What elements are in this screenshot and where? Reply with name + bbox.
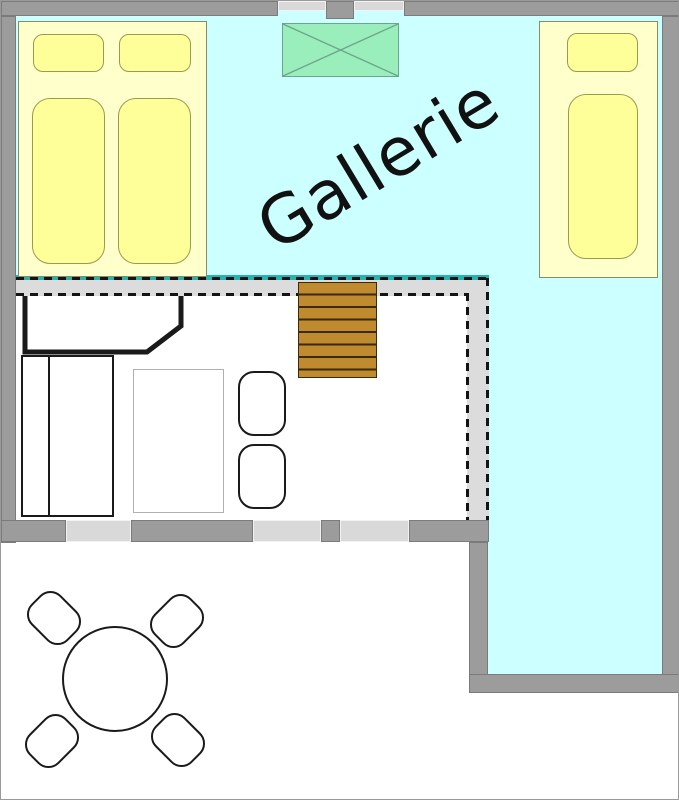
dining-table (133, 369, 224, 513)
gallery-edge-dashed-line-right (486, 278, 489, 520)
wall-bottom-segment-1 (1, 520, 66, 542)
pillow (119, 34, 191, 72)
window-bottom-2 (253, 520, 321, 542)
pillow (567, 33, 638, 72)
gallery-floor-extension (488, 278, 662, 674)
wall-bottom-segment-2 (131, 520, 253, 542)
wall-post-top (326, 1, 354, 19)
chair (238, 444, 286, 509)
window-bottom-1 (66, 520, 131, 542)
wall-extension-left (469, 542, 488, 693)
couch (21, 355, 114, 517)
wall-top-right (404, 1, 679, 16)
wall-left (1, 16, 16, 543)
wall-bottom-segment-3 (409, 520, 489, 542)
pillow (33, 34, 104, 72)
mattress (568, 94, 638, 259)
wall-right (662, 16, 679, 693)
mattress (32, 98, 105, 264)
wall-extension-bottom (469, 674, 679, 693)
wall-top-left (1, 1, 278, 16)
skylight-cross-icon (283, 24, 398, 76)
window-top-2 (354, 1, 404, 11)
floor-plan: Gallerie (0, 0, 679, 800)
terrace-chair (19, 708, 85, 774)
mattress (118, 98, 191, 264)
window-top-1 (278, 1, 326, 11)
skylight (282, 23, 399, 77)
gallery-edge-dashed-line-left (466, 293, 469, 520)
staircase (298, 282, 377, 378)
counter-outline (20, 291, 186, 357)
wall-bottom-post (321, 520, 340, 542)
couch-divider (48, 357, 50, 515)
window-bottom-3 (340, 520, 409, 542)
single-bed (539, 21, 658, 278)
chair (238, 371, 286, 436)
terrace-chair (145, 707, 211, 773)
terrace-round-table (62, 626, 168, 732)
double-bed (18, 21, 207, 277)
